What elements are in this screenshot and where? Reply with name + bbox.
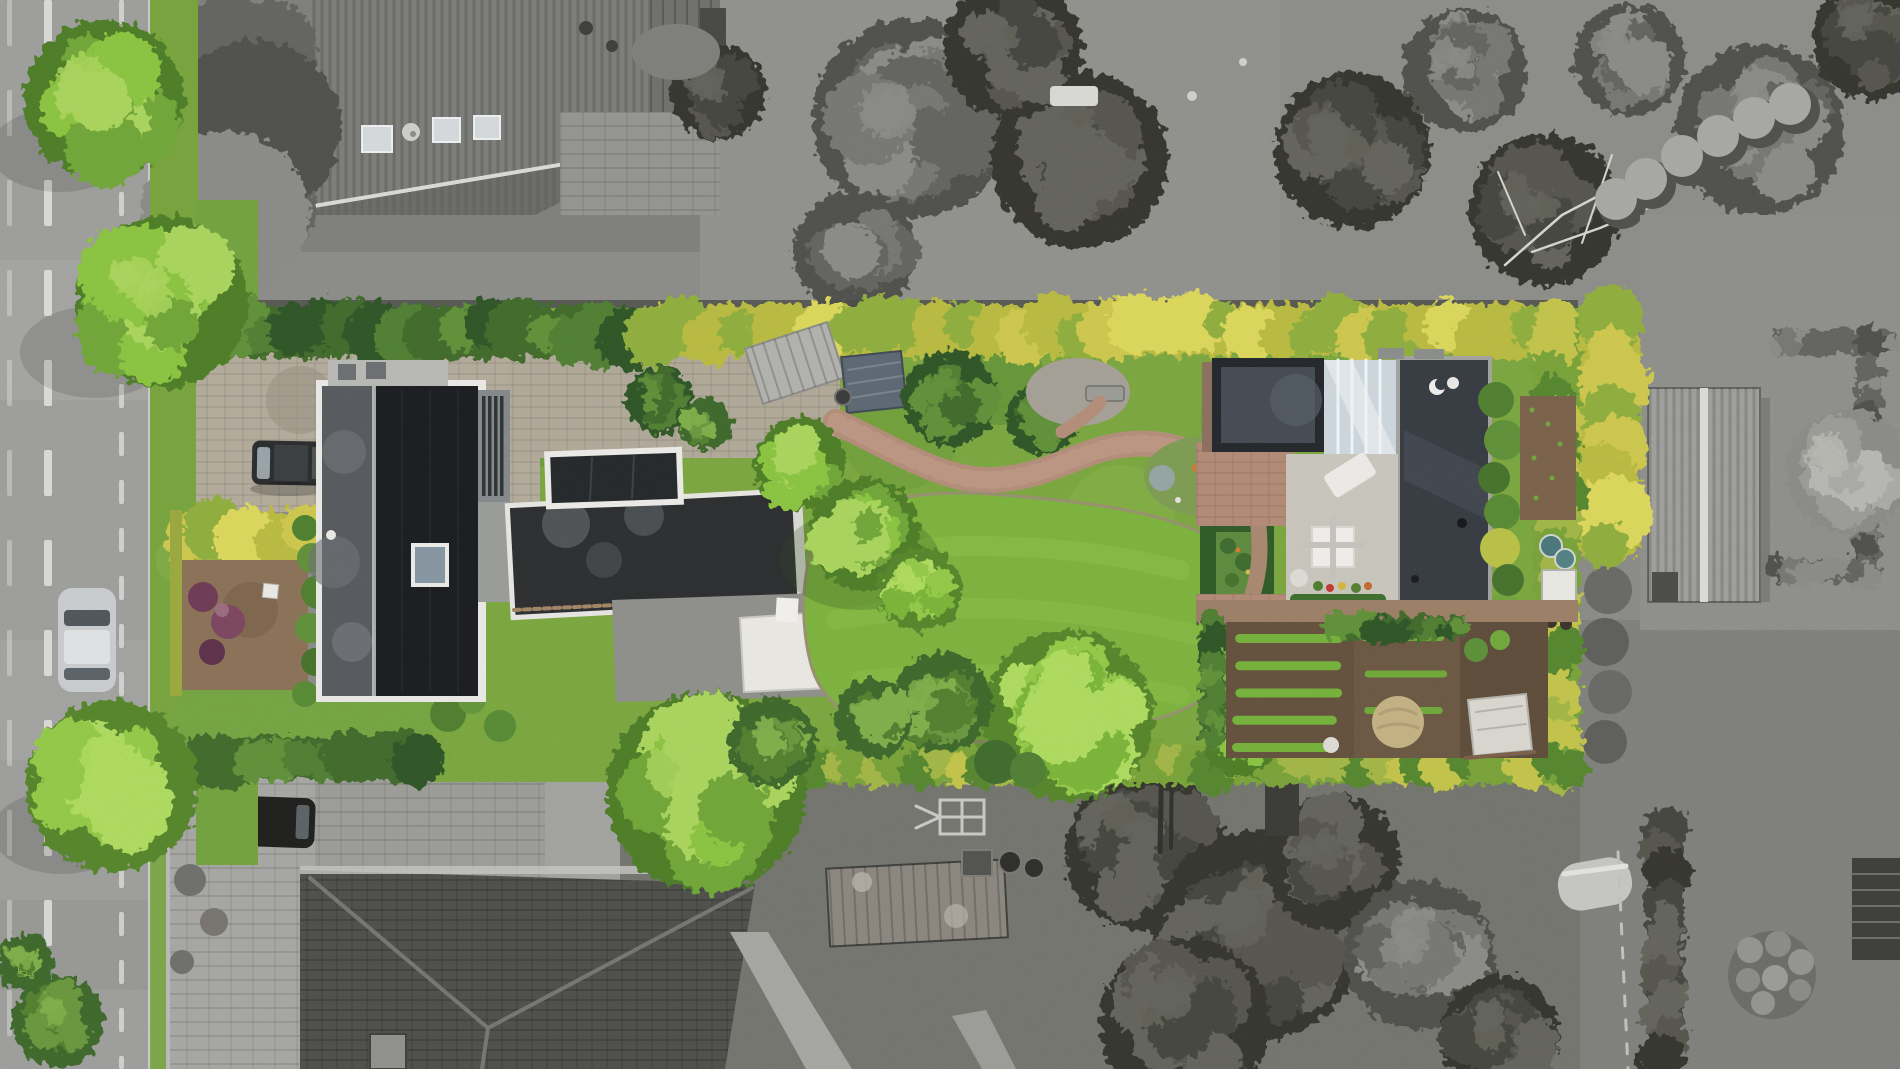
aerial-photo-canvas xyxy=(0,0,1900,1069)
aerial-photo xyxy=(0,0,1900,1069)
film-grain xyxy=(0,0,1900,1069)
